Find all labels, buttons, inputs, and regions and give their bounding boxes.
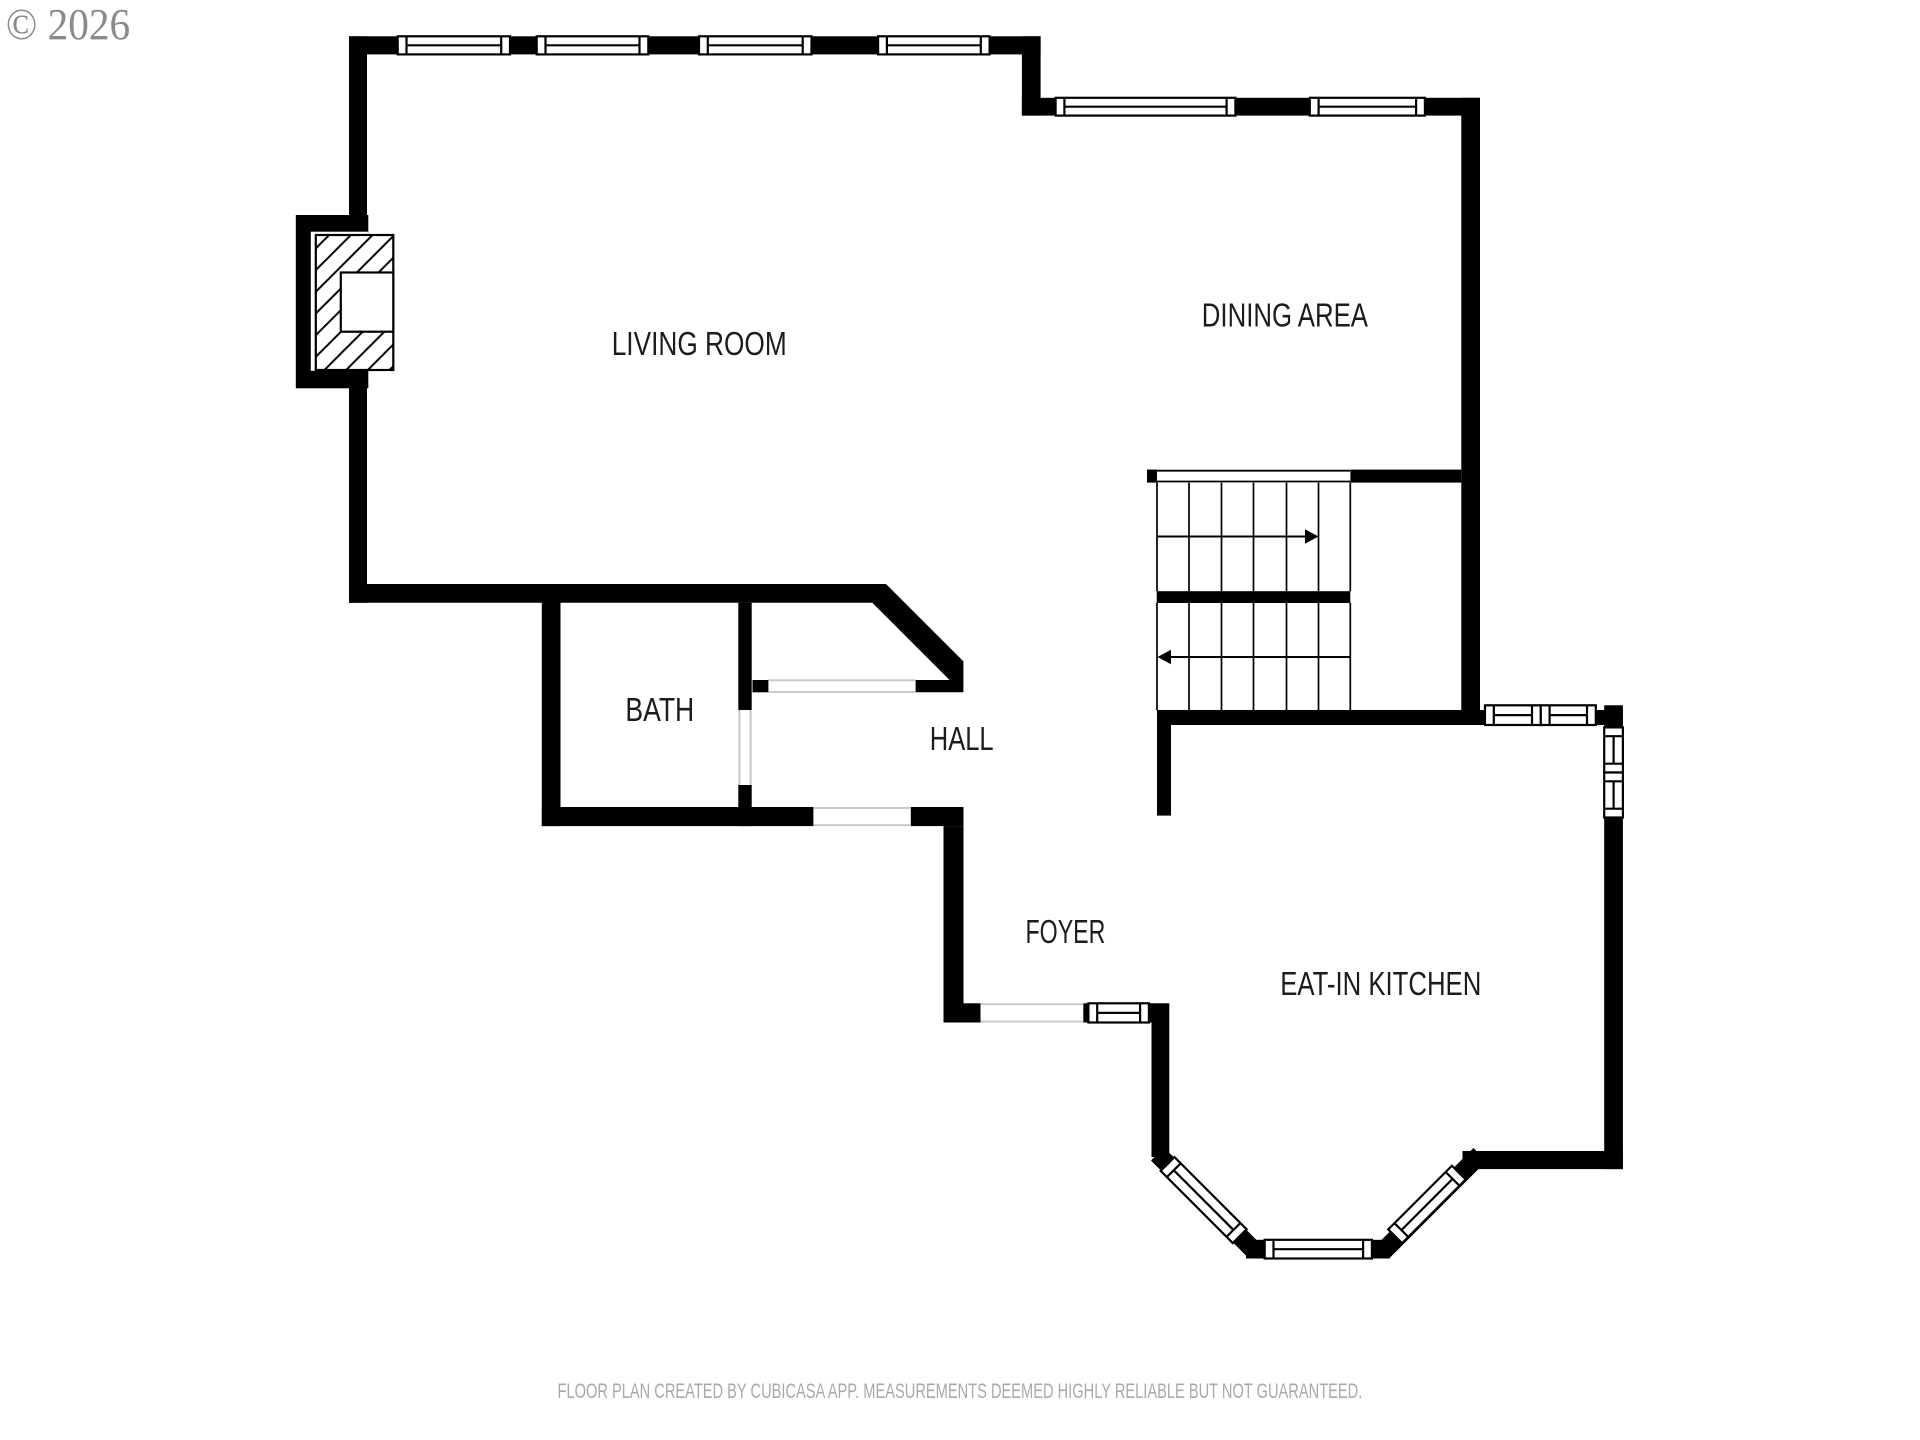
- svg-text:FLOOR PLAN CREATED BY CUBICASA: FLOOR PLAN CREATED BY CUBICASA APP. MEAS…: [558, 1379, 1363, 1403]
- svg-text:DINING AREA: DINING AREA: [1202, 297, 1368, 334]
- svg-text:EAT-IN KITCHEN: EAT-IN KITCHEN: [1280, 965, 1481, 1002]
- svg-text:© 2026: © 2026: [6, 0, 130, 49]
- svg-text:FOYER: FOYER: [1026, 913, 1106, 950]
- svg-text:HALL: HALL: [930, 720, 994, 757]
- svg-text:BATH: BATH: [625, 691, 694, 728]
- svg-text:LIVING ROOM: LIVING ROOM: [612, 325, 787, 362]
